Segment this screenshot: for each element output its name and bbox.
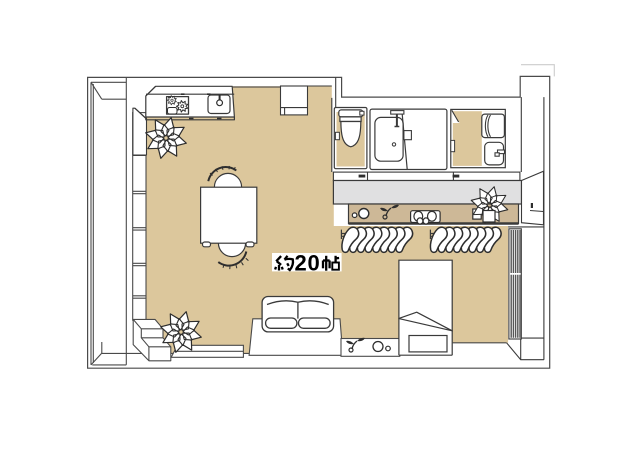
svg-text:20: 20 [295,250,321,275]
